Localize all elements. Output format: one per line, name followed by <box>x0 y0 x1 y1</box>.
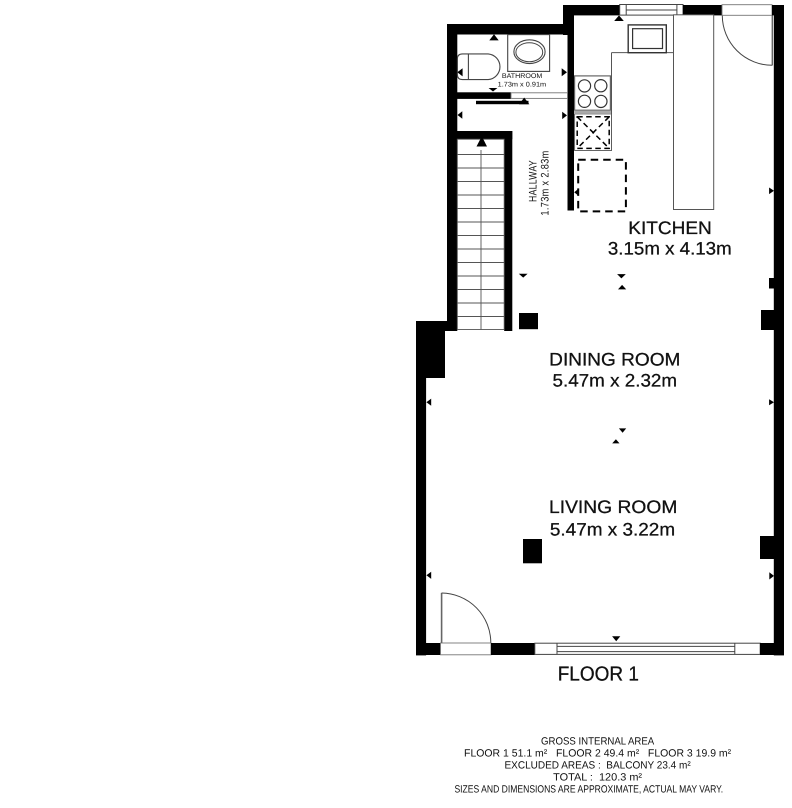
svg-text:KITCHEN: KITCHEN <box>628 218 712 238</box>
svg-text:GROSS INTERNAL AREA: GROSS INTERNAL AREA <box>541 735 654 747</box>
svg-text:BATHROOM: BATHROOM <box>502 73 543 80</box>
svg-text:5.47m x 2.32m: 5.47m x 2.32m <box>553 371 678 391</box>
svg-text:1.73m x 0.91m: 1.73m x 0.91m <box>498 81 547 88</box>
svg-text:TOTAL : 120.3 m²: TOTAL : 120.3 m² <box>553 771 642 783</box>
svg-text:1.73m x 2.83m: 1.73m x 2.83m <box>539 150 551 215</box>
svg-text:HALLWAY: HALLWAY <box>527 160 539 202</box>
svg-text:LIVING ROOM: LIVING ROOM <box>549 497 677 517</box>
svg-text:SIZES AND DIMENSIONS ARE APPRO: SIZES AND DIMENSIONS ARE APPROXIMATE, AC… <box>454 784 723 796</box>
svg-text:5.47m x 3.22m: 5.47m x 3.22m <box>550 519 675 539</box>
svg-text:EXCLUDED AREAS : BALCONY 23.4: EXCLUDED AREAS : BALCONY 23.4 m² <box>505 760 692 772</box>
svg-text:3.15m x 4.13m: 3.15m x 4.13m <box>608 239 732 259</box>
svg-text:FLOOR 1 51.1 m² FLOOR 2 49.4: FLOOR 1 51.1 m² FLOOR 2 49.4 m² FLOOR 3 … <box>464 748 732 760</box>
svg-text:FLOOR 1: FLOOR 1 <box>558 664 639 686</box>
svg-text:DINING ROOM: DINING ROOM <box>549 349 680 369</box>
